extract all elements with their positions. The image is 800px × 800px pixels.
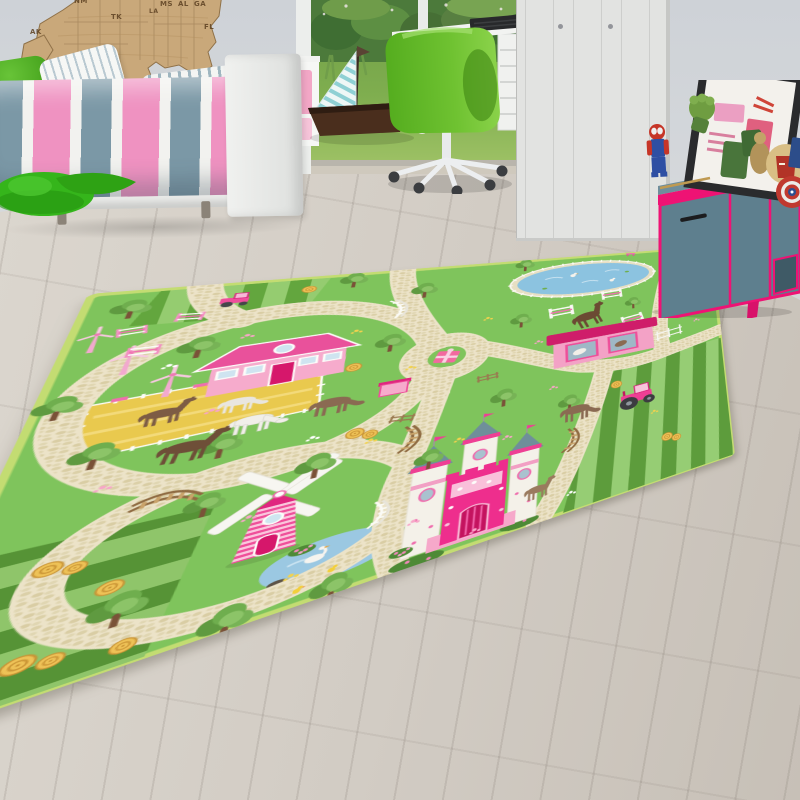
- toy-shelf-display: [640, 80, 800, 218]
- map-label: AL: [178, 0, 189, 8]
- map-label: MS: [160, 0, 173, 8]
- boat-pennant: [357, 46, 370, 57]
- wardrobe-knob: [608, 24, 613, 29]
- lego-spiderman: [646, 123, 671, 177]
- kids-room-photo: { "scene": { "type": "product-photo", "s…: [0, 0, 800, 800]
- map-label: TK: [111, 13, 122, 21]
- wardrobe-knob: [558, 24, 563, 29]
- open-shelf: [774, 255, 797, 294]
- leaf-beanbag: [0, 156, 146, 222]
- chair-shell: [384, 26, 501, 138]
- bed-leg: [201, 201, 210, 218]
- bed-footboard: [225, 54, 304, 217]
- map-label: NM: [74, 0, 88, 5]
- map-label: GA: [194, 0, 206, 8]
- boat-sail: [315, 52, 356, 110]
- map-label: LA: [149, 8, 158, 15]
